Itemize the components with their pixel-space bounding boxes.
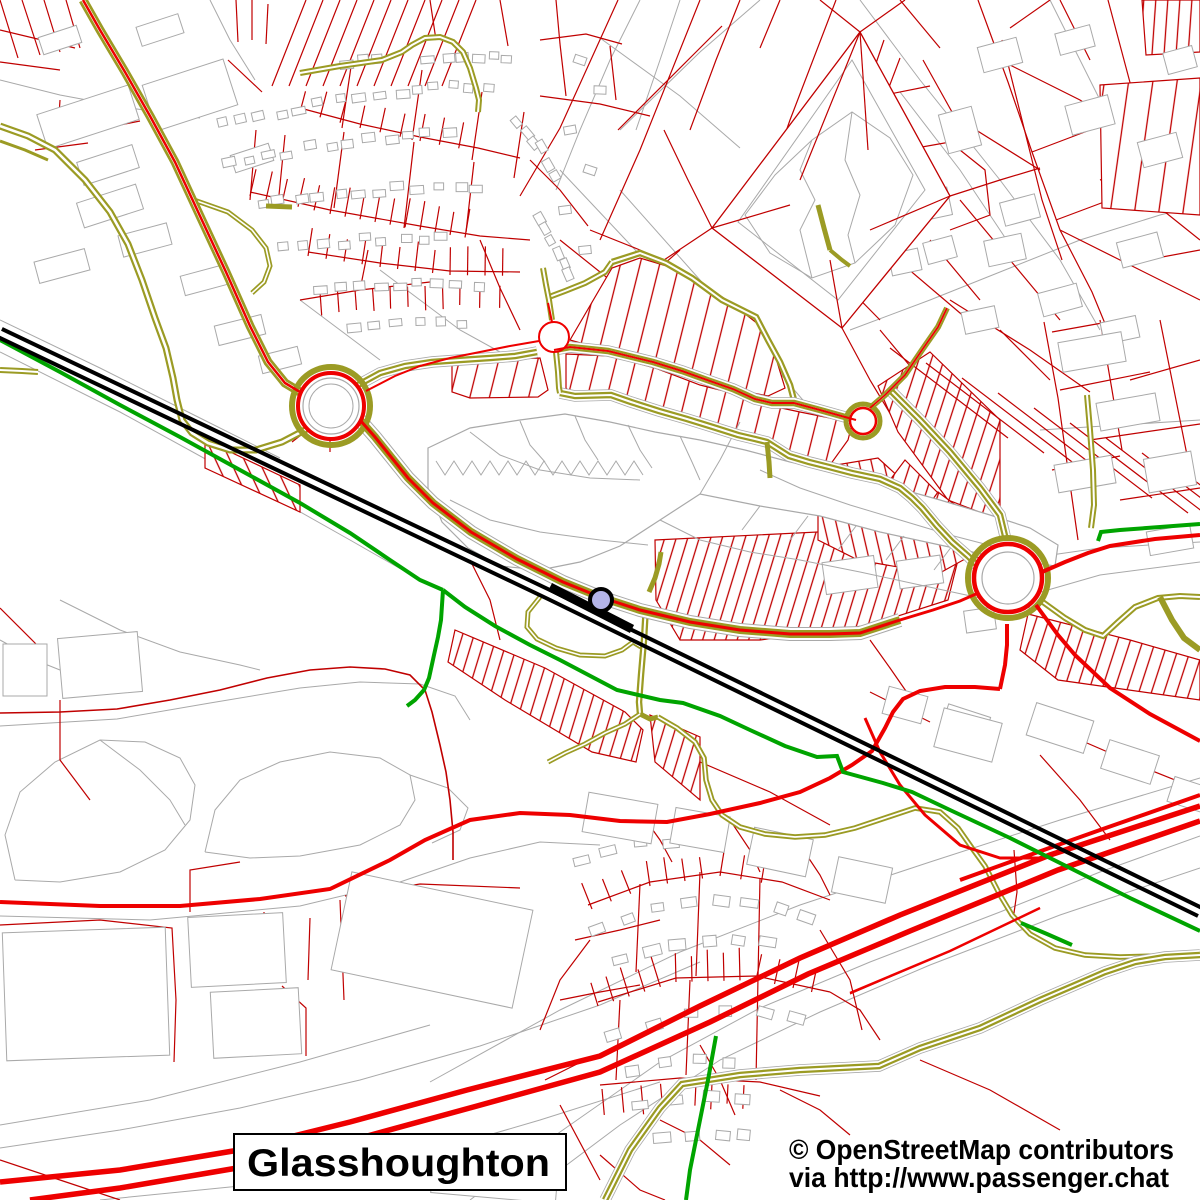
svg-text:Glasshoughton: Glasshoughton: [247, 1142, 550, 1185]
svg-text:via http://www.passenger.chat: via http://www.passenger.chat: [789, 1162, 1169, 1193]
svg-text:© OpenStreetMap contributors: © OpenStreetMap contributors: [789, 1134, 1174, 1165]
